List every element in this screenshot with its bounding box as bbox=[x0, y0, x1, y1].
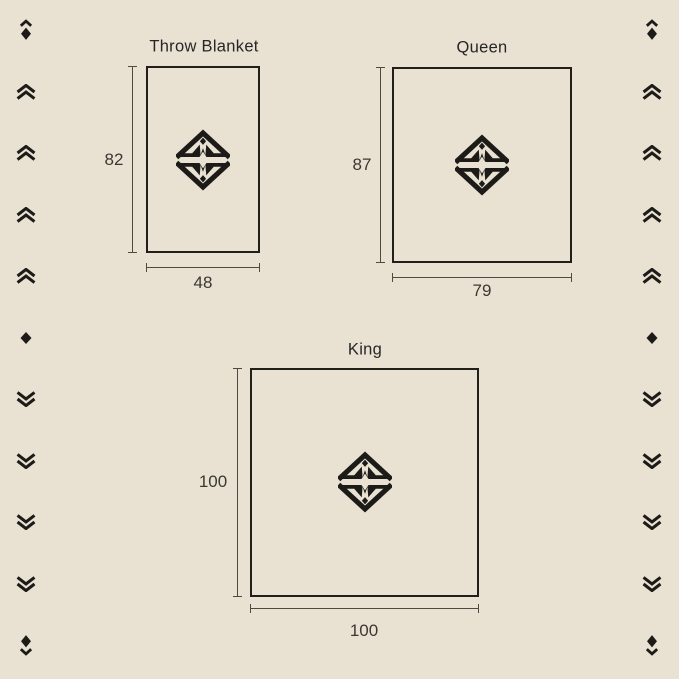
blanket-size-chart: Throw Blanket 82 48 Queen 87 79 King 100… bbox=[0, 0, 679, 679]
figure-king: King 100 100 bbox=[0, 0, 679, 679]
width-dimension-line bbox=[250, 608, 479, 609]
height-dimension-line bbox=[237, 368, 238, 597]
width-value: 100 bbox=[350, 621, 378, 641]
height-value: 100 bbox=[199, 472, 227, 492]
figure-title: King bbox=[348, 341, 382, 360]
mountain-diamond-logo-icon bbox=[338, 451, 392, 514]
